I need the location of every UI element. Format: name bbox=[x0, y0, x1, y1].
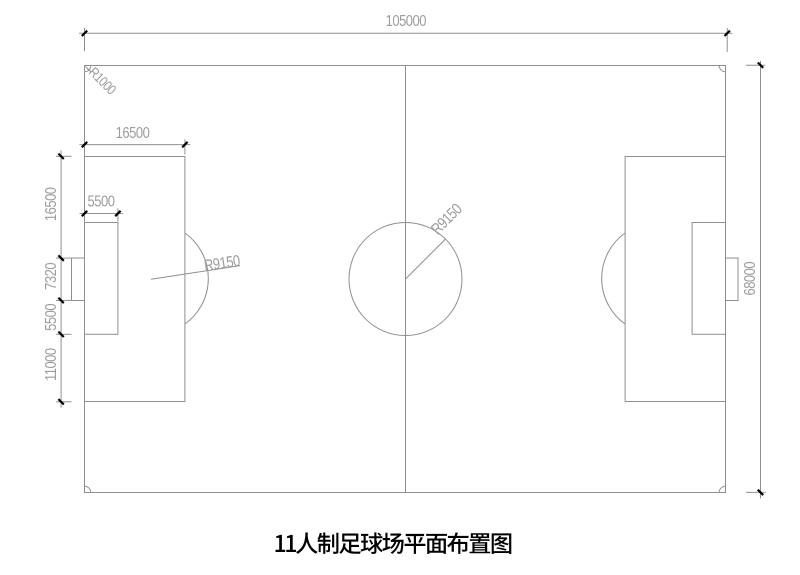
svg-text:16500: 16500 bbox=[116, 125, 150, 142]
svg-text:16500: 16500 bbox=[43, 187, 60, 221]
svg-text:7320: 7320 bbox=[43, 263, 60, 290]
svg-text:105000: 105000 bbox=[386, 13, 427, 30]
svg-text:68000: 68000 bbox=[742, 261, 759, 295]
svg-text:5500: 5500 bbox=[43, 304, 60, 331]
svg-text:5500: 5500 bbox=[88, 193, 115, 210]
svg-text:11000: 11000 bbox=[43, 348, 60, 381]
